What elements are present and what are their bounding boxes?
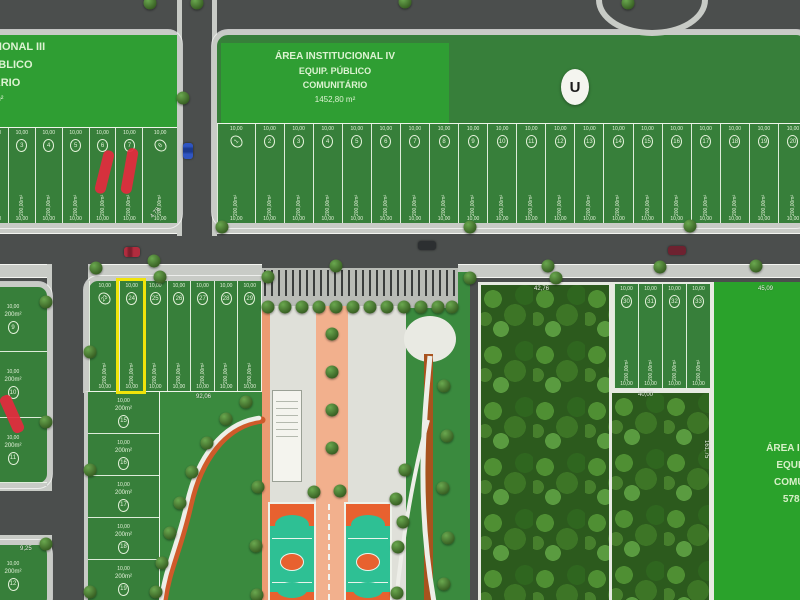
area-v-panel: ÁREA INSTITU EQUIP. PÚ COMUNITÁ 5789,75 [712, 282, 800, 600]
lot-area: 200,00m² [648, 310, 654, 381]
lot-area: 200,00m² [354, 150, 360, 216]
lot-number: 26 [173, 292, 184, 305]
lot-dim-bottom: 10,00 [612, 216, 625, 223]
lot[interactable]: 10,00 1 200,00m² 10,00 [217, 124, 255, 223]
tree-icon [391, 587, 404, 600]
lot-dim-top: 10,00 [7, 369, 20, 376]
lot-number: 3 [293, 135, 304, 148]
lot-dim-top: 10,00 [230, 126, 243, 133]
lot-dim-bottom: 10,00 [263, 216, 276, 223]
lot-area: 200,00m² [19, 154, 25, 216]
lot-number: 31 [645, 295, 656, 308]
lot-dim-bottom: 10,00 [583, 216, 596, 223]
tree-icon [347, 301, 360, 314]
lot-number: 15 [118, 415, 129, 428]
lot-number: 3 [16, 139, 27, 152]
lot-area: 200,00m² [247, 307, 253, 384]
lot[interactable]: 10,00 200m² 19 [88, 560, 159, 600]
sports-court-left [268, 502, 316, 600]
road-horizontal-left [0, 486, 52, 540]
tree-icon [186, 466, 199, 479]
tree-icon [399, 464, 412, 477]
lot-dim-bottom: 10,00 [525, 216, 538, 223]
tree-icon [90, 262, 103, 275]
tree-icon [40, 296, 53, 309]
tree-icon [164, 527, 177, 540]
lot-dim-top: 10,00 [69, 130, 82, 137]
lot-number: 19 [758, 135, 769, 148]
lot[interactable]: 10,00 14 200,00m² 10,00 [603, 124, 632, 223]
lot-number: 33 [693, 295, 704, 308]
lot-number: 24 [126, 292, 137, 305]
tree-icon [250, 540, 263, 553]
lot-dim-top: 10,00 [699, 126, 712, 133]
court-end-zone [346, 504, 390, 526]
site-plan-map: UCIONAL III PÚBLICO ITÁRIO 46 m² 10,00 2… [0, 0, 800, 600]
lot-number: 10 [497, 135, 508, 148]
court-end-zone [346, 592, 390, 600]
court-divider-path [328, 504, 330, 600]
lot-dim-bottom: 10,00 [670, 216, 683, 223]
block-bottom-left-1: 10,00 200m² 9 10,00 200m² 10 10,00 200m²… [0, 282, 52, 488]
cycle-lane [424, 354, 433, 600]
tree-icon [397, 516, 410, 529]
lot-dim-top: 10,00 [7, 435, 20, 442]
lot[interactable]: 10,00 33 200,00m² 10,00 [686, 284, 710, 388]
sidewalk [0, 264, 47, 278]
lot-block-right: 10,00 30 200,00m² 10,00 10,00 31 200,00m… [612, 282, 712, 390]
lot-number: 6 [380, 135, 391, 148]
lot-dim-bottom: 10,00 [292, 216, 305, 223]
lot-area: 200,00m² [46, 154, 52, 216]
tree-icon [156, 557, 169, 570]
lot-dim-top: 10,00 [292, 126, 305, 133]
lot[interactable]: 10,00 6 200,00m² 10,00 [371, 124, 400, 223]
lot-dim-top: 10,00 [583, 126, 596, 133]
lot-area: 200,00m² [223, 307, 229, 384]
tree-icon [550, 272, 563, 285]
lot-number: 14 [613, 135, 624, 148]
lot[interactable]: 10,00 29 200,00m² 10,00 [237, 281, 261, 391]
lot-number: 16 [118, 457, 129, 470]
lot-number: 5 [351, 135, 362, 148]
lot-number: 27 [197, 292, 208, 305]
lot-area: 200,00m² [703, 150, 709, 216]
lot-area: 200m² [115, 573, 132, 581]
lot[interactable]: 10,00 28 200,00m² 10,00 [214, 281, 238, 391]
area-iii-size: 46 m² [0, 94, 177, 103]
tree-icon [654, 261, 667, 274]
tree-icon [40, 538, 53, 551]
car-icon [124, 247, 140, 257]
dim-label: 45,09 [758, 286, 773, 293]
lot-area: 200m² [115, 447, 132, 455]
lot-area: 200,00m² [732, 150, 738, 216]
lot-dim-top: 10,00 [96, 130, 109, 137]
lot-area: 200m² [115, 489, 132, 497]
court-line [348, 538, 388, 539]
tree-icon [177, 92, 190, 105]
tree-icon [392, 541, 405, 554]
tree-icon [364, 301, 377, 314]
lot-area: 200,00m² [557, 150, 563, 216]
lot-area: 200,00m² [129, 307, 135, 384]
lot-area: 200,00m² [441, 150, 447, 216]
lot[interactable]: 10,00 3 200,00m² 10,00 [284, 124, 313, 223]
lot-dim-top: 10,00 [0, 130, 1, 137]
lot-number: 18 [118, 541, 129, 554]
lot-dim-top: 10,00 [438, 126, 451, 133]
lot-dim-top: 10,00 [117, 566, 130, 573]
park-lawn-left [160, 392, 262, 600]
lot-dim-top: 10,00 [758, 126, 771, 133]
lot-dim-top: 10,00 [729, 126, 742, 133]
dim-label: 9,25 [20, 546, 32, 553]
area-v-line3: COMUNITÁ [726, 477, 800, 488]
lot-area: 200,00m² [586, 150, 592, 216]
lot[interactable]: 10,00 27 200,00m² 10,00 [190, 281, 214, 391]
lot-dim-bottom: 10,00 [123, 216, 136, 223]
lot-area: 200,00m² [499, 150, 505, 216]
block-u-badge: U [561, 69, 589, 105]
forest-area-2 [612, 390, 712, 600]
lot[interactable]: 10,00 200m² 9 [0, 287, 47, 352]
lot-area: 200,00m² [200, 307, 206, 384]
lot-number: 25 [150, 292, 161, 305]
tree-icon [326, 442, 339, 455]
lot-number: 1 [228, 133, 245, 150]
lot[interactable]: 10,00 32 200,00m² 10,00 [662, 284, 686, 388]
lot[interactable]: 10,00 3 200,00m² 10,00 [8, 128, 35, 223]
area-v-line2: EQUIP. PÚ [726, 460, 800, 471]
lot-number: 12 [555, 135, 566, 148]
tree-icon [220, 413, 233, 426]
tree-icon [279, 301, 292, 314]
lot-dim-bottom: 10,00 [173, 384, 186, 391]
car-icon [183, 143, 193, 159]
lot-number: 32 [669, 295, 680, 308]
tree-icon [438, 578, 451, 591]
tree-icon [326, 404, 339, 417]
lot-area: 200,00m² [528, 150, 534, 216]
lot[interactable]: 10,00 5 200,00m² 10,00 [62, 128, 89, 223]
lot-number: 11 [526, 135, 537, 148]
car-icon [418, 241, 436, 250]
tree-icon [437, 482, 450, 495]
lot-dim-top: 10,00 [496, 126, 509, 133]
tree-icon [154, 271, 167, 284]
dim-label: 92,06 [196, 394, 211, 401]
lot-dim-bottom: 10,00 [644, 381, 657, 388]
area-iv-panel: ÁREA INSTITUCIONAL IV EQUIP. PÚBLICO COM… [221, 43, 449, 123]
lot[interactable]: 10,00 13 200,00m² 10,00 [574, 124, 603, 223]
court-line [272, 538, 312, 539]
tree-icon [330, 301, 343, 314]
lot-area: 200,00m² [176, 307, 182, 384]
lot-dim-top: 10,00 [525, 126, 538, 133]
dim-label: 42,76 [534, 286, 549, 293]
lot-area: 200,00m² [152, 307, 158, 384]
lot-area: 200m² [4, 568, 21, 576]
lot-dim-bottom: 10,00 [230, 216, 243, 223]
lot[interactable]: 10,00 30 200,00m² 10,00 [614, 284, 638, 388]
lot-column-left: 10,00 200m² 15 10,00 200m² 16 10,00 200m… [84, 392, 160, 600]
lot-dim-top: 10,00 [467, 126, 480, 133]
lot-dim-bottom: 10,00 [699, 216, 712, 223]
area-iii-panel: UCIONAL III PÚBLICO ITÁRIO 46 m² [0, 35, 177, 127]
lot-number: 30 [621, 295, 632, 308]
lot[interactable]: 10,00 26 200,00m² 10,00 [167, 281, 191, 391]
lot-area: 200,00m² [624, 310, 630, 381]
lot-area: 200,00m² [645, 150, 651, 216]
lot-area: 200m² [4, 311, 21, 319]
area-iii-line2: PÚBLICO [0, 59, 177, 71]
tree-icon [174, 497, 187, 510]
lot[interactable]: 10,00 11 200,00m² 10,00 [516, 124, 545, 223]
lot-dim-bottom: 10,00 [69, 216, 82, 223]
forest-area [478, 282, 612, 600]
dim-label: 40,00 [638, 392, 653, 399]
lot-number: 7 [409, 135, 420, 148]
lot-dim-top: 10,00 [117, 524, 130, 531]
block-top-right: ÁREA INSTITUCIONAL IV EQUIP. PÚBLICO COM… [212, 30, 800, 228]
lot[interactable]: 10,00 10 200,00m² 10,00 [487, 124, 516, 223]
tree-icon [399, 0, 412, 9]
lot-area: 200,00m² [615, 150, 621, 216]
lot-number: 2 [264, 135, 275, 148]
lot-area: 200,00m² [790, 150, 796, 216]
lot-dim-top: 10,00 [668, 286, 681, 293]
lot-dim-bottom: 10,00 [409, 216, 422, 223]
tree-icon [542, 260, 555, 273]
lot-area: 200,00m² [102, 307, 108, 384]
lot-dim-bottom: 10,00 [692, 381, 705, 388]
lot-area: 200,00m² [267, 150, 273, 216]
lot[interactable]: 10,00 23 200,00m² 10,00 [89, 281, 119, 391]
lot-number: 4 [43, 139, 54, 152]
tree-icon [144, 0, 157, 10]
lot-dim-top: 10,00 [42, 130, 55, 137]
tree-icon [464, 272, 477, 285]
lot-area: 200m² [115, 531, 132, 539]
tree-icon [313, 301, 326, 314]
area-iv-line2: EQUIP. PÚBLICO [221, 66, 449, 76]
lot-dim-top: 10,00 [7, 304, 20, 311]
lot[interactable]: 10,00 200m² 18 [88, 518, 159, 560]
lot[interactable]: 10,00 2 200,00m² 10,00 [0, 128, 8, 223]
lot[interactable]: 10,00 7 200,00m² 10,00 [400, 124, 429, 223]
tree-icon [330, 260, 343, 273]
lot-dim-bottom: 10,00 [96, 216, 109, 223]
lot-number: 4 [322, 135, 333, 148]
lot-dim-top: 10,00 [380, 126, 393, 133]
tree-icon [438, 380, 451, 393]
lot-area: 200,00m² [383, 150, 389, 216]
lot-dim-top: 10,00 [554, 126, 567, 133]
lot-number: 19 [118, 583, 129, 596]
lot-dim-top: 10,00 [409, 126, 422, 133]
lot-area: 200,00m² [296, 150, 302, 216]
parking-stalls [264, 270, 456, 296]
car-icon [668, 246, 686, 255]
lot-number: 18 [729, 135, 740, 148]
tree-icon [40, 416, 53, 429]
lot-area: 200,00m² [672, 310, 678, 381]
lot-dim-bottom: 10,00 [438, 216, 451, 223]
lot-dim-bottom: 10,00 [496, 216, 509, 223]
court-center-circle [357, 554, 379, 570]
lot-area: 200,00m² [325, 150, 331, 216]
tree-icon [148, 255, 161, 268]
tree-icon [441, 430, 454, 443]
lot-dim-top: 10,00 [670, 126, 683, 133]
lot-area: 200m² [4, 442, 21, 450]
tree-icon [308, 486, 321, 499]
lot-area: 200,00m² [761, 150, 767, 216]
lot[interactable]: 10,00 9 200,00m² 10,00 [458, 124, 487, 223]
tree-icon [415, 301, 428, 314]
lot-number: 12 [8, 578, 19, 591]
lot[interactable]: 10,00 8 200,00m² 10,00 [429, 124, 458, 223]
lot-dim-bottom: 10,00 [98, 384, 111, 391]
lot-dim-top: 10,00 [692, 286, 705, 293]
tree-icon [216, 221, 229, 234]
lot[interactable]: 10,00 12 200,00m² 10,00 [545, 124, 574, 223]
tree-icon [262, 301, 275, 314]
lot-dim-top: 10,00 [7, 561, 20, 568]
lot-number: 28 [221, 292, 232, 305]
tree-icon [381, 301, 394, 314]
block-mid-left: 10,00 23 200,00m² 10,00 10,00 24 200,00m… [84, 276, 262, 392]
lot[interactable]: 10,00 17 200,00m² 10,00 [691, 124, 720, 223]
area-iv-name: ÁREA INSTITUCIONAL IV [221, 51, 449, 62]
lot-number: 8 [439, 135, 450, 148]
tree-icon [398, 301, 411, 314]
lot-dim-top: 10,00 [641, 126, 654, 133]
lot[interactable]: 10,00 200m² 15 [88, 392, 159, 434]
lot-dim-top: 10,00 [263, 126, 276, 133]
area-iii-line3: ITÁRIO [0, 77, 177, 89]
area-iii-name: UCIONAL III [0, 41, 177, 53]
lot-number: 23 [96, 290, 113, 307]
lot-area: 200m² [115, 405, 132, 413]
tree-icon [84, 586, 97, 599]
lot-number: 17 [118, 499, 129, 512]
lot-dim-bottom: 10,00 [641, 216, 654, 223]
lot-dim-top: 10,00 [787, 126, 800, 133]
tree-icon [326, 366, 339, 379]
lot-area: 200,00m² [73, 154, 79, 216]
tree-icon [684, 220, 697, 233]
lot-number: 29 [244, 292, 255, 305]
area-v-name: ÁREA INSTITU [726, 443, 800, 454]
lot[interactable]: 10,00 16 200,00m² 10,00 [662, 124, 691, 223]
tree-icon [150, 586, 163, 599]
area-v-size: 5789,75 [726, 494, 800, 505]
lot-row-top-left: 10,00 2 200,00m² 10,00 10,00 3 200,00m² … [0, 127, 177, 223]
lot-dim-bottom: 10,00 [0, 216, 1, 223]
lot[interactable]: 10,00 31 200,00m² 10,00 [638, 284, 662, 388]
lot-dim-bottom: 10,00 [554, 216, 567, 223]
court-center-circle [281, 554, 303, 570]
tree-icon [201, 437, 214, 450]
lot-dim-bottom: 10,00 [729, 216, 742, 223]
tree-icon [432, 301, 445, 314]
block-top-left: UCIONAL III PÚBLICO ITÁRIO 46 m² 10,00 2… [0, 30, 182, 228]
kiosk-building [272, 390, 302, 482]
tree-icon [251, 589, 264, 600]
lot[interactable]: 10,00 4 200,00m² 10,00 [35, 128, 62, 223]
lot-area: 200,00m² [233, 150, 239, 216]
lot-dim-top: 10,00 [16, 130, 29, 137]
lot-area: 200,00m² [674, 150, 680, 216]
lot[interactable]: 10,00 200m² 12 [0, 545, 47, 600]
sports-court-right [344, 502, 392, 600]
lot-dim-bottom: 10,00 [787, 216, 800, 223]
lot-dim-bottom: 10,00 [668, 381, 681, 388]
lot[interactable]: 10,00 24 200,00m² 10,00 [119, 281, 143, 391]
lot-dim-bottom: 10,00 [16, 216, 29, 223]
lot-dim-bottom: 10,00 [196, 384, 209, 391]
lot[interactable]: 10,00 20 200,00m² 10,00 [778, 124, 800, 223]
lot-dim-bottom: 10,00 [351, 216, 364, 223]
lot[interactable]: 10,00 15 200,00m² 10,00 [633, 124, 662, 223]
lot-dim-bottom: 10,00 [149, 384, 162, 391]
lot[interactable]: 10,00 25 200,00m² 10,00 [143, 281, 167, 391]
tree-icon [296, 301, 309, 314]
tree-icon [84, 346, 97, 359]
tree-icon [390, 493, 403, 506]
lot[interactable]: 10,00 4 200,00m² 10,00 [313, 124, 342, 223]
tree-icon [464, 221, 477, 234]
lot-dim-bottom: 10,00 [620, 381, 633, 388]
lot[interactable]: 10,00 200m² 17 [88, 476, 159, 518]
court-end-zone [270, 504, 314, 526]
lot-dim-bottom: 10,00 [321, 216, 334, 223]
area-iv-line3: COMUNITÁRIO [221, 80, 449, 90]
lot-number: 20 [787, 135, 798, 148]
lot-area: 200,00m² [470, 150, 476, 216]
lot-dim-top: 10,00 [644, 286, 657, 293]
lot[interactable]: 10,00 2 200,00m² 10,00 [255, 124, 284, 223]
lot[interactable]: 10,00 19 200,00m² 10,00 [749, 124, 778, 223]
tree-icon [240, 396, 253, 409]
lot-row-top-strip: 10,00 1 200,00m² 10,00 10,00 2 200,00m² … [217, 123, 800, 223]
lot-dim-bottom: 10,00 [42, 216, 55, 223]
lot-dim-top: 10,00 [123, 130, 136, 137]
tree-icon [252, 481, 265, 494]
lot-area: 200m² [4, 376, 21, 384]
lot-dim-top: 10,00 [243, 283, 256, 290]
lot-dim-top: 10,00 [125, 283, 138, 290]
lot[interactable]: 10,00 18 200,00m² 10,00 [720, 124, 749, 223]
lot[interactable]: 10,00 200m² 16 [88, 434, 159, 476]
lot-dim-top: 10,00 [154, 130, 167, 137]
lot-dim-bottom: 10,00 [380, 216, 393, 223]
lot-dim-top: 10,00 [612, 126, 625, 133]
lot[interactable]: 10,00 5 200,00m² 10,00 [342, 124, 371, 223]
lot-dim-top: 10,00 [321, 126, 334, 133]
lot-number: 13 [584, 135, 595, 148]
lot-dim-top: 10,00 [173, 283, 186, 290]
lot-area: 200,00m² [696, 310, 702, 381]
lot-number: 9 [468, 135, 479, 148]
lot-dim-bottom: 10,00 [243, 384, 256, 391]
lot-number: 5 [70, 139, 81, 152]
area-iv-size: 1452,80 m² [221, 95, 449, 104]
court-end-zone [270, 592, 314, 600]
lot-number: 8 [152, 137, 169, 154]
